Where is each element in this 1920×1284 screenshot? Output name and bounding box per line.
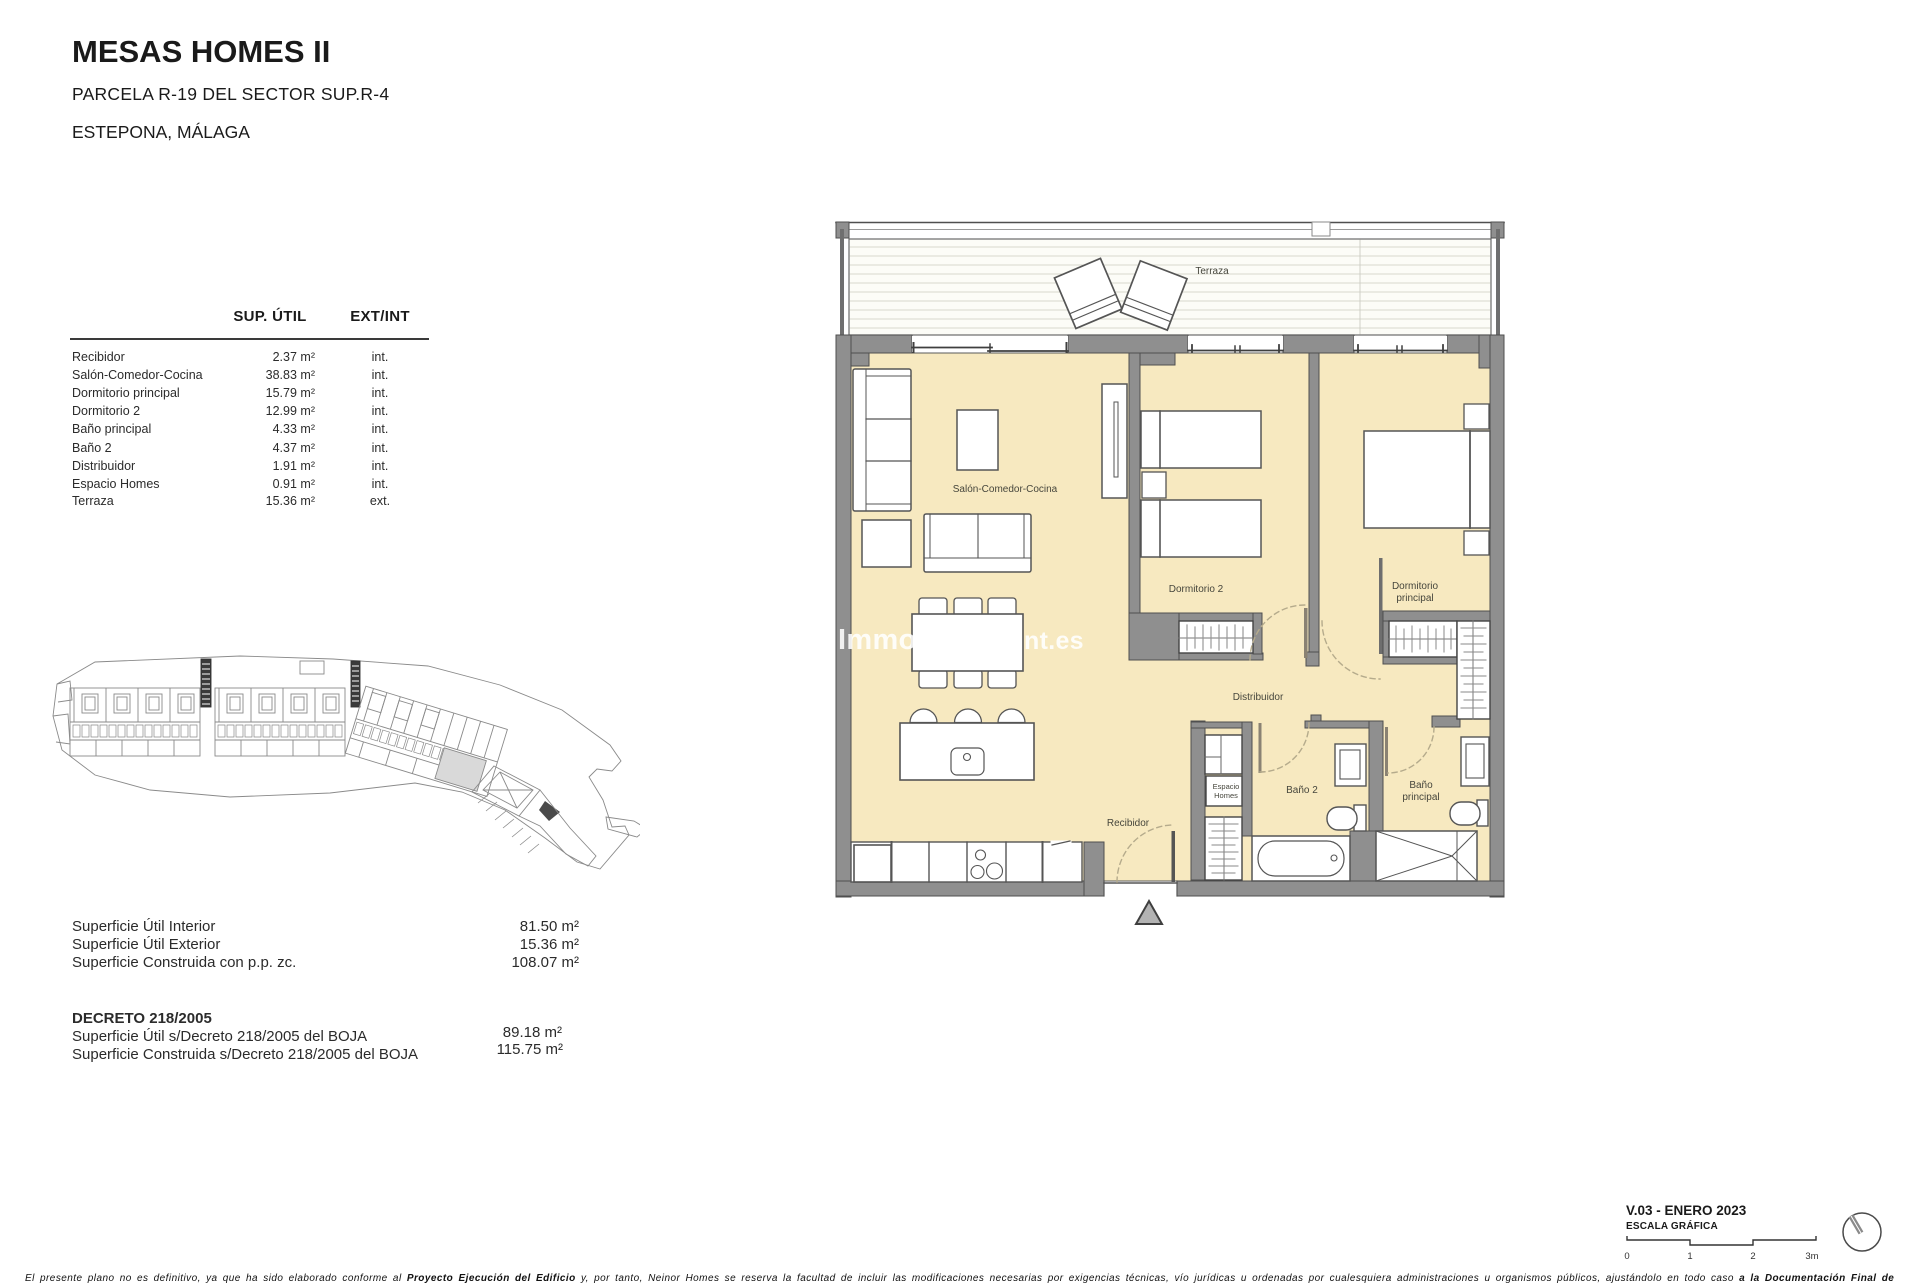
- svg-text:Salón-Comedor-Cocina: Salón-Comedor-Cocina: [953, 484, 1058, 495]
- svg-text:Baño 2: Baño 2: [1286, 785, 1318, 796]
- svg-text:1: 1: [1687, 1251, 1692, 1262]
- svg-text:Recibidor: Recibidor: [1107, 818, 1150, 829]
- svg-text:3m: 3m: [1805, 1251, 1818, 1262]
- svg-text:Dormitorio 2: Dormitorio 2: [1169, 584, 1224, 595]
- svg-text:principal: principal: [1402, 792, 1439, 803]
- svg-text:Homes: Homes: [1214, 791, 1238, 800]
- svg-text:Baño: Baño: [1409, 780, 1433, 791]
- svg-text:0: 0: [1624, 1251, 1629, 1262]
- svg-text:Espacio: Espacio: [1213, 782, 1240, 791]
- svg-text:Distribuidor: Distribuidor: [1233, 692, 1284, 703]
- svg-text:principal: principal: [1396, 593, 1433, 604]
- svg-text:Dormitorio: Dormitorio: [1392, 581, 1439, 592]
- svg-text:2: 2: [1750, 1251, 1755, 1262]
- svg-text:Terraza: Terraza: [1195, 266, 1229, 277]
